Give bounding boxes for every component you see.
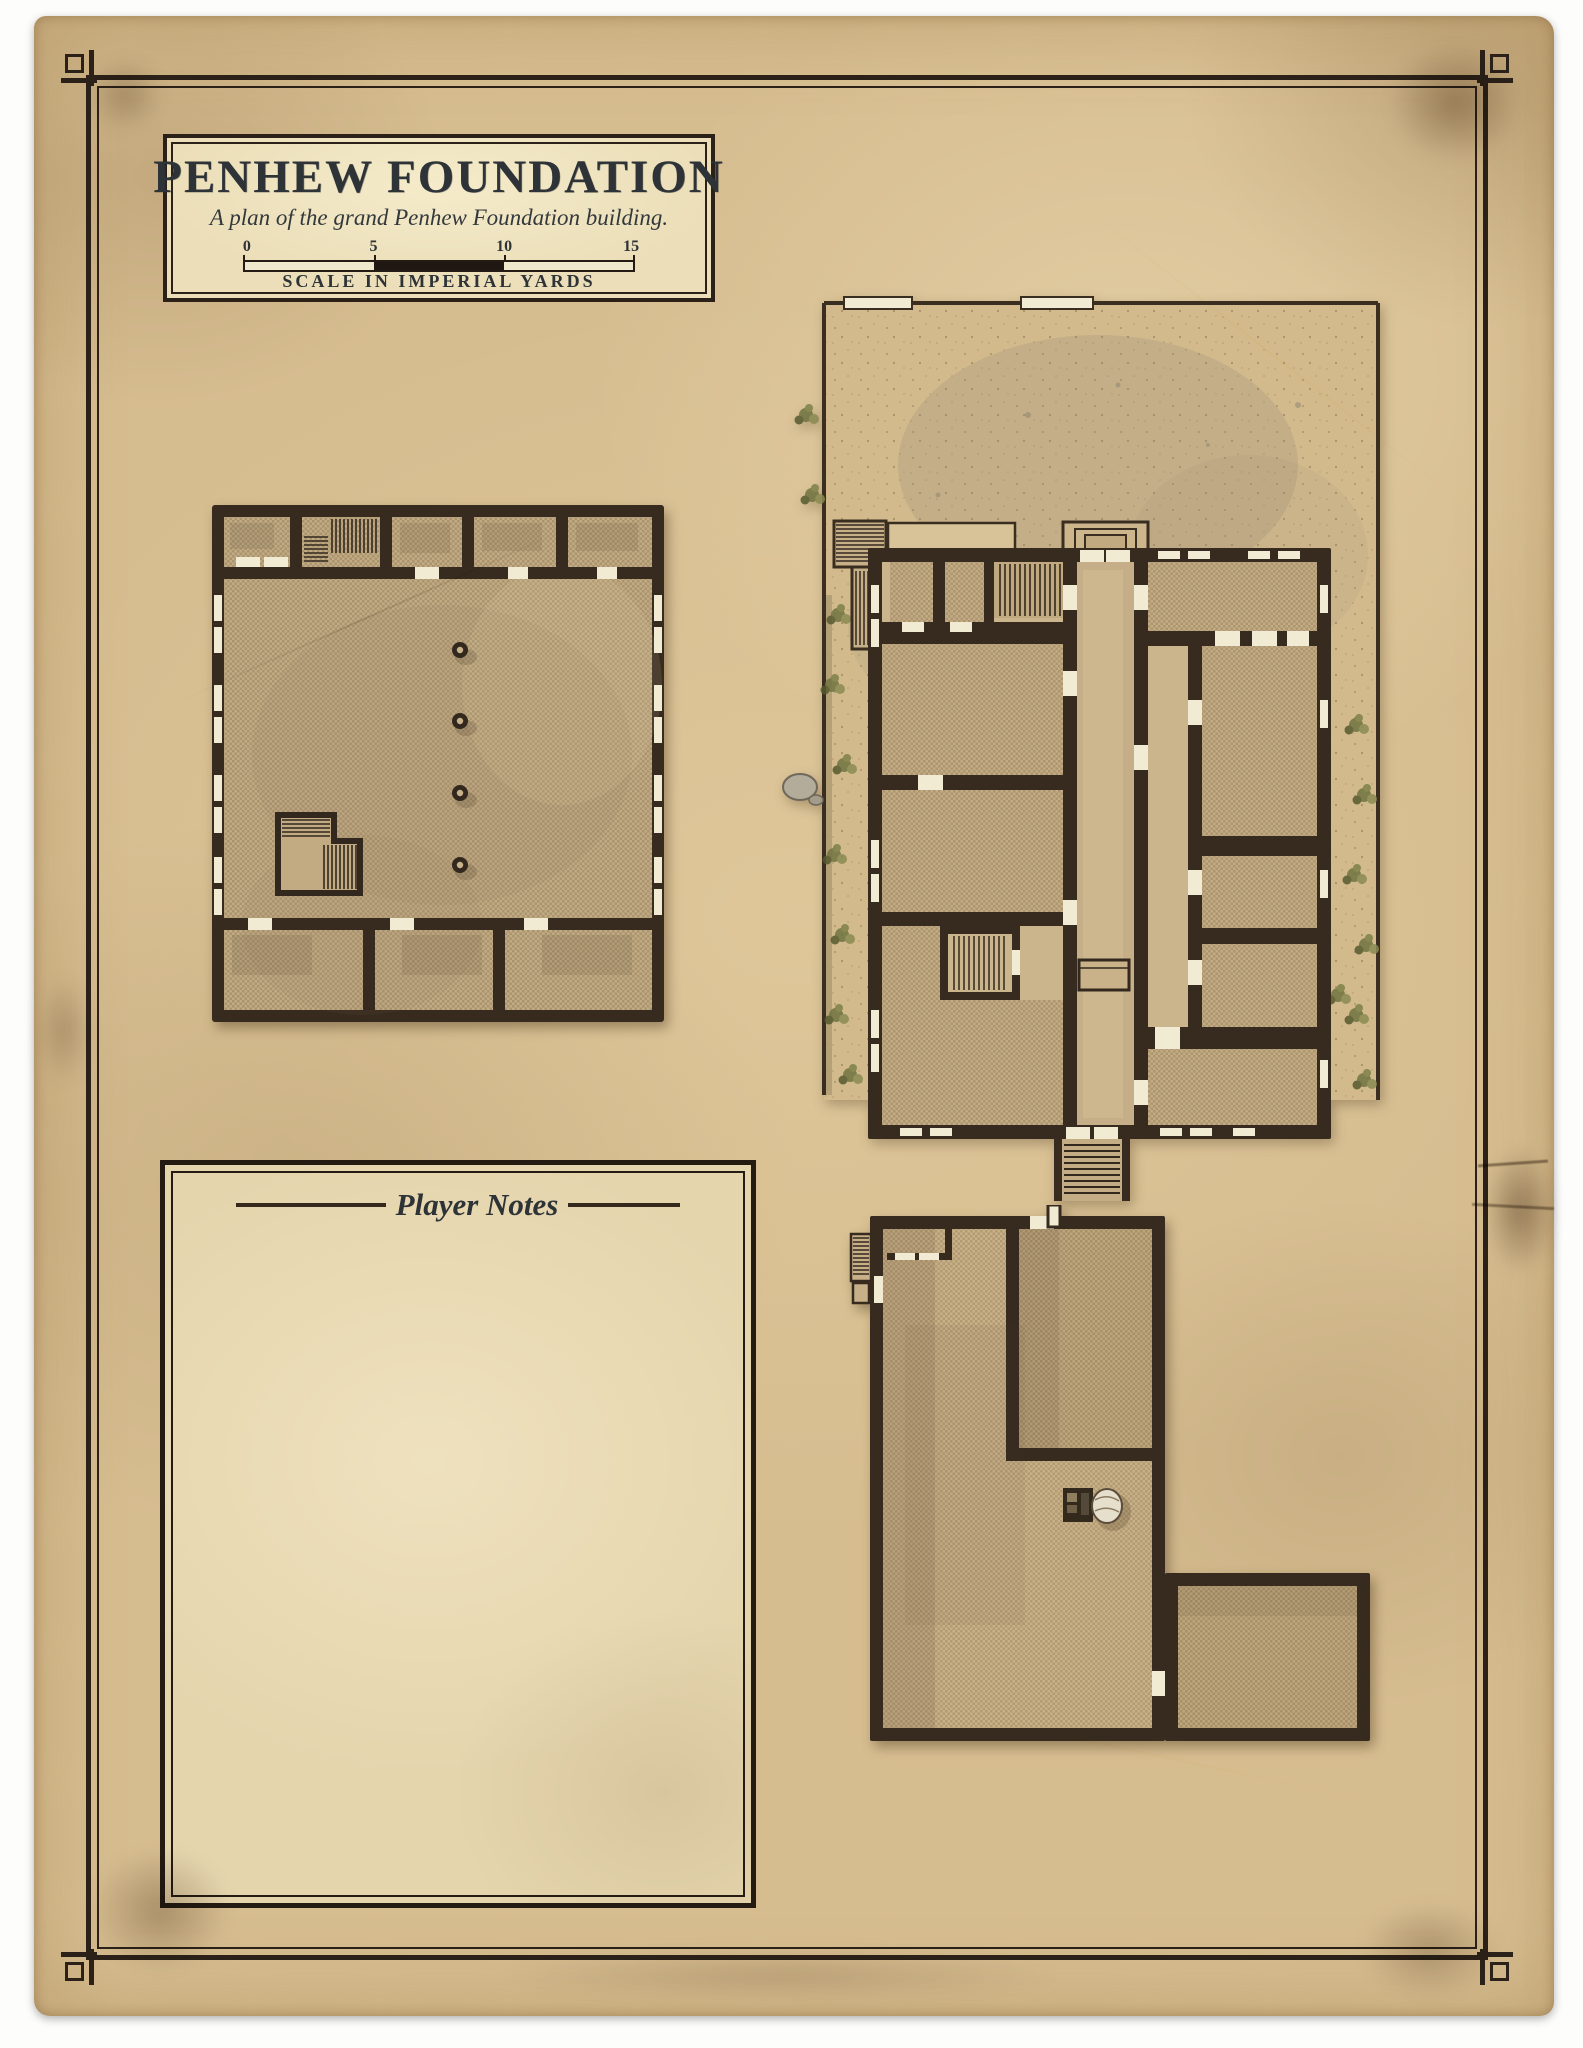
scale-tick-label: 0 [243, 238, 251, 256]
reception-desk [1079, 960, 1129, 990]
frame-corner-ornament [1480, 50, 1485, 86]
exterior-stair [851, 1234, 871, 1303]
player-notes-header: Player Notes [165, 1187, 751, 1223]
scale-tick-label: 15 [623, 238, 639, 256]
scale-segment-light [245, 262, 374, 270]
player-notes-panel: Player Notes [160, 1160, 756, 1908]
frame-corner-ornament [1490, 1962, 1509, 1981]
scale-bar: 0 5 10 15 [243, 238, 635, 268]
scale-caption: SCALE IN IMPERIAL YARDS [282, 271, 595, 292]
scale-tick-label: 5 [370, 238, 378, 256]
hallway [1077, 562, 1134, 1125]
page-title: PENHEW FOUNDATION [153, 153, 725, 202]
frame-corner-ornament [89, 1949, 94, 1985]
scanned-map-page: PENHEW FOUNDATION A plan of the grand Pe… [0, 0, 1583, 2048]
frame-corner-ornament [89, 50, 94, 86]
boulder [783, 774, 823, 805]
scale-bar-segments [243, 260, 635, 272]
courtyard-gate [844, 297, 912, 309]
scale-tick-label: 10 [496, 238, 512, 256]
grand-staircase [994, 562, 1063, 618]
title-cartouche-inner: PENHEW FOUNDATION A plan of the grand Pe… [171, 142, 707, 294]
scale-segment-light [504, 262, 633, 270]
upper-floor-plan [212, 505, 664, 1025]
frame-corner-ornament [65, 54, 84, 73]
courtyard-gate [1021, 297, 1093, 309]
scale-segment-dark [374, 262, 503, 270]
top-door [1030, 1205, 1060, 1229]
frame-corner-ornament [1490, 54, 1509, 73]
page-subtitle: A plan of the grand Penhew Foundation bu… [210, 205, 668, 231]
ground-floor-plan [778, 295, 1390, 1207]
title-cartouche: PENHEW FOUNDATION A plan of the grand Pe… [163, 134, 715, 302]
entrance-steps [1054, 1139, 1130, 1201]
desk [1063, 1488, 1093, 1522]
header-rule [568, 1203, 680, 1207]
frame-corner-ornament [65, 1962, 84, 1981]
building [868, 548, 1331, 1201]
player-notes-title: Player Notes [396, 1187, 559, 1223]
basement-plan [845, 1205, 1390, 1750]
player-notes-inner-border [171, 1171, 745, 1897]
header-rule [236, 1203, 386, 1207]
frame-corner-ornament [1480, 1949, 1485, 1985]
